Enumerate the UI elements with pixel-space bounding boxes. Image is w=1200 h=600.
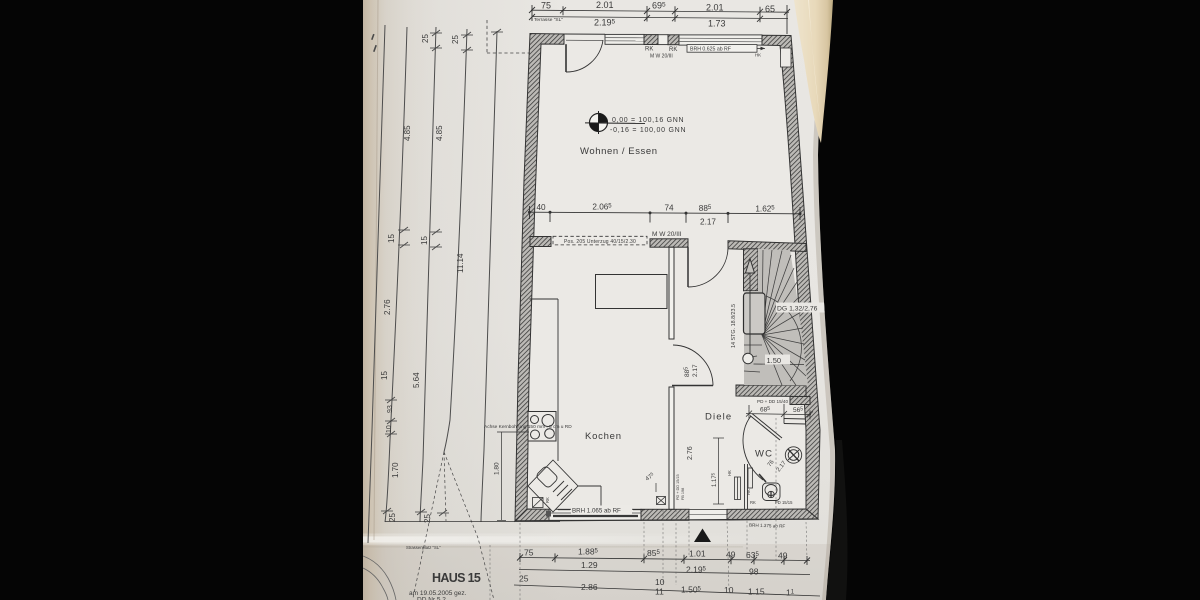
svg-text:PD + DD 15/40: PD + DD 15/40	[757, 399, 788, 404]
svg-text:4.85: 4.85	[435, 125, 444, 141]
svg-text:98: 98	[749, 566, 759, 576]
svg-text:49: 49	[726, 549, 736, 559]
svg-text:M W 20/III: M W 20/III	[652, 231, 682, 238]
svg-text:2.17: 2.17	[692, 364, 699, 377]
svg-text:Achse Kernbohrung 150 mm , 5 c: Achse Kernbohrung 150 mm , 5 cm u RD	[484, 424, 572, 430]
svg-text:15: 15	[380, 371, 389, 380]
svg-text:4.85: 4.85	[403, 125, 412, 141]
svg-text:WC: WC	[755, 449, 773, 460]
svg-text:1.73: 1.73	[708, 18, 726, 28]
svg-text:25: 25	[388, 513, 397, 522]
svg-text:Strassenplatz "SL": Strassenplatz "SL"	[406, 545, 441, 550]
svg-text:2.86: 2.86	[581, 582, 598, 592]
svg-text:Terrasse "SL": Terrasse "SL"	[534, 17, 563, 23]
svg-text:2.76: 2.76	[383, 299, 392, 315]
svg-text:DD Nr 5.2: DD Nr 5.2	[417, 597, 446, 600]
svg-text:-0,16 = 100,00 GNN: -0,16 = 100,00 GNN	[610, 127, 686, 134]
svg-text:5.64: 5.64	[412, 372, 421, 388]
svg-text:Wohnen / Essen: Wohnen / Essen	[580, 146, 658, 157]
svg-text:1.15: 1.15	[748, 587, 765, 597]
svg-text:74: 74	[664, 203, 674, 212]
svg-text:M W 20/III: M W 20/III	[650, 54, 673, 60]
svg-text:40: 40	[536, 203, 546, 212]
svg-text:2.17: 2.17	[700, 218, 716, 227]
svg-text:HK: HK	[755, 53, 761, 58]
svg-text:0,00 = 100,16 GNN: 0,00 = 100,16 GNN	[612, 117, 684, 124]
svg-text:49: 49	[778, 551, 788, 561]
svg-text:1.29: 1.29	[581, 560, 598, 570]
svg-text:DG 1,32/2,76: DG 1,32/2,76	[777, 306, 818, 313]
svg-text:1.50: 1.50	[767, 356, 782, 365]
svg-text:75: 75	[541, 1, 551, 11]
svg-text:25: 25	[519, 574, 529, 584]
svg-text:93: 93	[387, 405, 394, 413]
svg-text:BRH 1.065 ab RF: BRH 1.065 ab RF	[572, 508, 621, 515]
svg-text:2.76: 2.76	[687, 446, 694, 460]
svg-text:11: 11	[655, 587, 664, 597]
svg-text:2.01: 2.01	[706, 2, 724, 12]
svg-text:11.14: 11.14	[456, 253, 465, 273]
svg-text:Diele: Diele	[705, 412, 732, 423]
svg-text:65: 65	[765, 4, 775, 14]
svg-text:RK: RK	[545, 497, 550, 503]
svg-text:Kochen: Kochen	[585, 431, 622, 442]
svg-text:15: 15	[420, 236, 429, 245]
svg-text:Pos. 205 Unterzug 40/15/2.30: Pos. 205 Unterzug 40/15/2.30	[564, 239, 636, 245]
svg-text:HK: HK	[727, 470, 732, 476]
svg-text:BRH 0.625 ab RF: BRH 0.625 ab RF	[690, 47, 731, 53]
svg-text:HAUS 15: HAUS 15	[432, 571, 482, 585]
svg-text:PD 15/15: PD 15/15	[775, 500, 793, 505]
svg-text:RK: RK	[645, 47, 653, 53]
svg-text:1.80: 1.80	[494, 462, 501, 475]
svg-text:10: 10	[655, 577, 665, 587]
svg-text:25: 25	[451, 35, 460, 44]
svg-text:RK: RK	[669, 47, 677, 53]
svg-text:1.01: 1.01	[689, 549, 706, 559]
svg-text:15: 15	[387, 234, 396, 243]
svg-text:25: 25	[421, 34, 430, 43]
svg-text:75: 75	[524, 548, 534, 558]
svg-text:2.01: 2.01	[596, 0, 614, 10]
svg-text:10: 10	[386, 425, 393, 433]
svg-text:RK: RK	[750, 500, 756, 505]
svg-text:FB 198: FB 198	[681, 488, 685, 500]
svg-text:PD + DD 15/15: PD + DD 15/15	[676, 474, 680, 500]
svg-text:HK: HK	[746, 489, 751, 495]
svg-text:1.70: 1.70	[391, 462, 400, 478]
svg-text:14 STG. 18.8/23.5: 14 STG. 18.8/23.5	[731, 304, 737, 348]
